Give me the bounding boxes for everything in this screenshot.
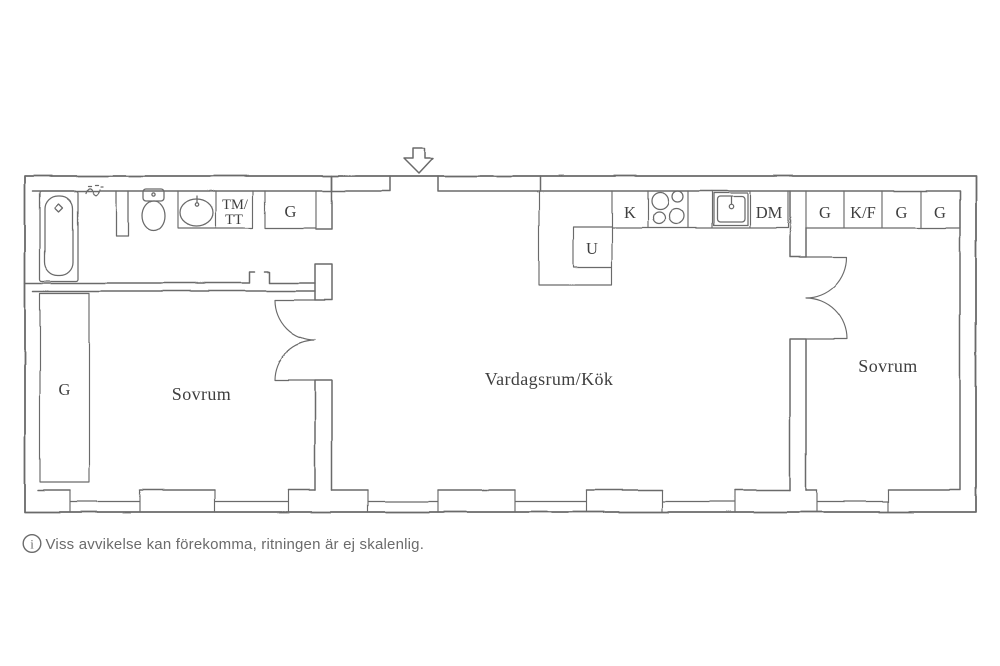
room-label-bedroom-right: Sovrum (858, 356, 917, 376)
oven-unit (539, 191, 612, 285)
window (817, 490, 888, 512)
room-label-living-kitchen: Vardagsrum/Kök (485, 369, 614, 389)
label-wardrobe-3: G (934, 203, 946, 222)
window (70, 490, 140, 512)
entrance-arrow-icon (404, 148, 433, 173)
outer-walls (25, 176, 976, 512)
window (662, 490, 735, 512)
floorplan-page: Sovrum Vardagsrum/Kök Sovrum TM/ TT G G … (0, 0, 1000, 666)
label-oven: U (586, 239, 598, 258)
inner-walls (33, 191, 960, 490)
window (215, 490, 288, 512)
label-wardrobe-1: G (819, 203, 831, 222)
label-washer-dryer-line1: TM/ (222, 197, 249, 213)
label-fridge-freezer: K/F (850, 203, 876, 222)
disclaimer-text: Viss avvikelse kan förekomma, ritningen … (46, 536, 425, 553)
shower-partition (116, 191, 128, 236)
kitchen-fixtures (652, 191, 748, 226)
windows (70, 490, 888, 512)
label-hall-wardrobe: G (285, 202, 297, 221)
window (368, 490, 438, 512)
bedroom-right-wall (790, 191, 806, 490)
window (515, 490, 587, 512)
entrance-vestibule-walls (332, 176, 540, 191)
toilet-icon (142, 189, 165, 231)
bedroom-left-door (275, 300, 315, 380)
label-bedroom-left-wardrobe: G (59, 380, 71, 399)
label-washer-dryer-line2: TT (225, 212, 243, 228)
bedroom-left-wall (315, 264, 332, 490)
bedroom-right-door (806, 257, 847, 339)
bathtub-icon (40, 191, 78, 281)
bathroom-fixtures (40, 185, 213, 281)
label-wardrobe-2: G (896, 203, 908, 222)
kitchen-sink-icon (714, 193, 748, 226)
drain-scribble-icon (86, 185, 103, 195)
disclaimer-caption: i Viss avvikelse kan förekomma, ritninge… (23, 535, 424, 553)
label-fridge: K (624, 203, 636, 222)
floorplan: Sovrum Vardagsrum/Kök Sovrum TM/ TT G G … (0, 0, 1000, 666)
hall-stub-wall (316, 176, 332, 229)
bathroom-sink-icon (180, 196, 213, 226)
info-icon-glyph: i (30, 537, 34, 552)
stove-icon (652, 191, 685, 224)
room-label-bedroom-left: Sovrum (172, 384, 231, 404)
plan-linework (25, 148, 976, 512)
label-dishwasher: DM (756, 203, 783, 222)
